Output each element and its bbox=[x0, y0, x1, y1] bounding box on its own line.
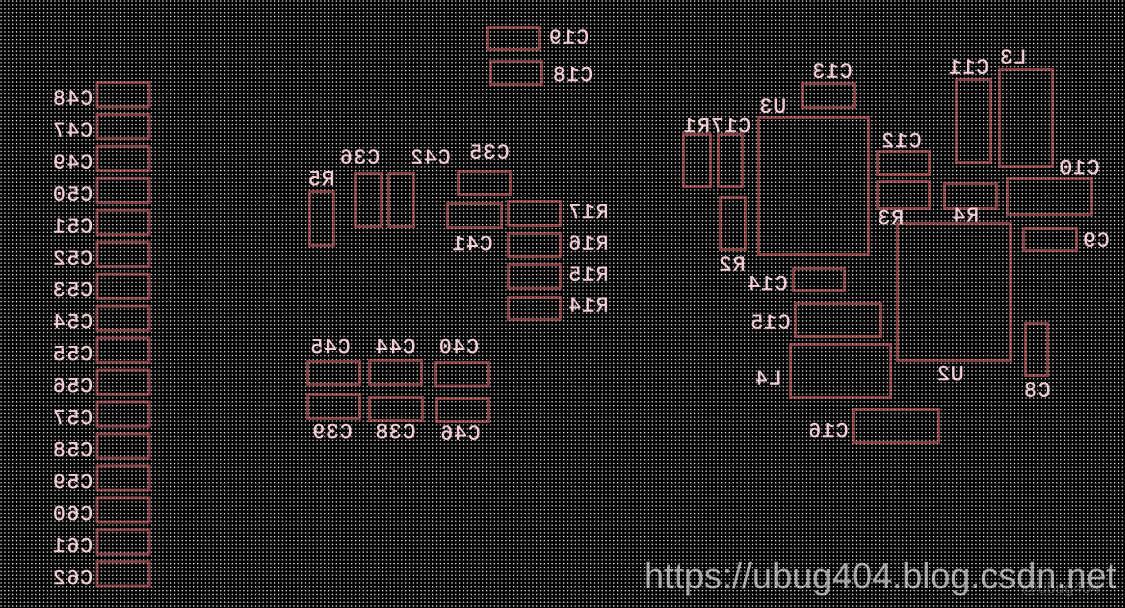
svg-text:C60: C60 bbox=[52, 504, 93, 527]
svg-text:L4: L4 bbox=[754, 369, 781, 392]
svg-text:C62: C62 bbox=[52, 568, 93, 591]
svg-text:C50: C50 bbox=[52, 184, 93, 207]
svg-text:C61: C61 bbox=[52, 536, 93, 559]
svg-text:https://ubug404.blog.csdn.net: https://ubug404.blog.csdn.net bbox=[644, 555, 1116, 596]
svg-text:C36: C36 bbox=[339, 148, 380, 171]
svg-text:R5: R5 bbox=[307, 169, 334, 192]
svg-text:C38: C38 bbox=[374, 422, 415, 445]
svg-text:C19: C19 bbox=[548, 28, 589, 51]
svg-text:C40: C40 bbox=[438, 337, 479, 360]
svg-text:C35: C35 bbox=[468, 143, 509, 166]
svg-text:U2: U2 bbox=[936, 364, 963, 387]
svg-text:C10: C10 bbox=[1058, 158, 1099, 181]
svg-text:C11: C11 bbox=[948, 58, 989, 81]
svg-text:R16: R16 bbox=[567, 234, 608, 257]
svg-text:C18: C18 bbox=[552, 65, 593, 88]
svg-text:C44: C44 bbox=[374, 337, 415, 360]
svg-text:C8: C8 bbox=[1023, 381, 1050, 404]
svg-text:C46: C46 bbox=[439, 424, 480, 447]
svg-text:C12: C12 bbox=[880, 131, 921, 154]
svg-text:C53: C53 bbox=[52, 280, 93, 303]
svg-text:C56: C56 bbox=[52, 376, 93, 399]
svg-text:C45: C45 bbox=[309, 337, 350, 360]
svg-text:R2: R2 bbox=[718, 255, 745, 278]
svg-text:R4: R4 bbox=[952, 206, 979, 229]
svg-text:C13: C13 bbox=[811, 62, 852, 85]
svg-text:C48: C48 bbox=[52, 89, 93, 112]
svg-text:C42: C42 bbox=[409, 148, 450, 171]
svg-text:R14: R14 bbox=[567, 296, 608, 319]
svg-text:C41: C41 bbox=[451, 234, 492, 257]
svg-text:C17R1: C17R1 bbox=[682, 116, 751, 139]
svg-text:R15: R15 bbox=[567, 265, 608, 288]
svg-text:C58: C58 bbox=[52, 440, 93, 463]
svg-text:L3: L3 bbox=[999, 48, 1026, 71]
svg-text:C16: C16 bbox=[807, 421, 848, 444]
svg-text:C39: C39 bbox=[311, 422, 352, 445]
svg-text:C55: C55 bbox=[52, 344, 93, 367]
svg-text:C51: C51 bbox=[52, 216, 93, 239]
svg-text:C59: C59 bbox=[52, 472, 93, 495]
svg-text:C14: C14 bbox=[746, 274, 787, 297]
svg-text:C49: C49 bbox=[52, 152, 93, 175]
svg-text:R17: R17 bbox=[567, 202, 608, 225]
svg-text:C47: C47 bbox=[52, 120, 93, 143]
svg-text:C15: C15 bbox=[749, 313, 790, 336]
svg-text:U3: U3 bbox=[759, 97, 786, 120]
svg-text:C57: C57 bbox=[52, 408, 93, 431]
svg-text:C52: C52 bbox=[52, 248, 93, 271]
svg-text:C9: C9 bbox=[1082, 231, 1109, 254]
svg-text:C54: C54 bbox=[52, 312, 93, 335]
svg-text:R3: R3 bbox=[877, 208, 904, 231]
